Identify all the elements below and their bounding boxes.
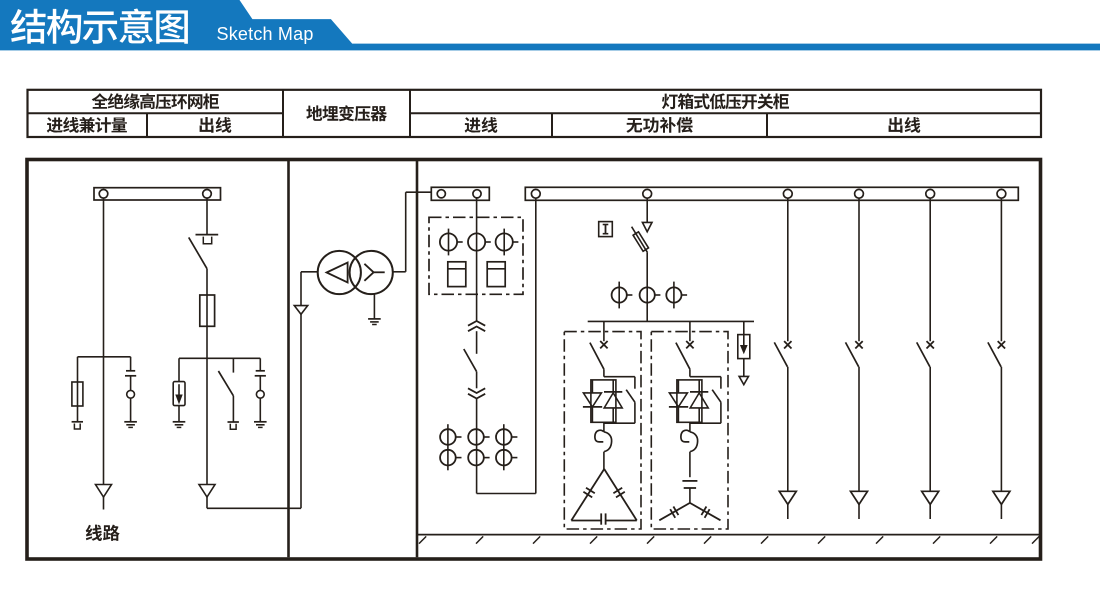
svg-text:Sketch Map: Sketch Map [217,24,314,44]
